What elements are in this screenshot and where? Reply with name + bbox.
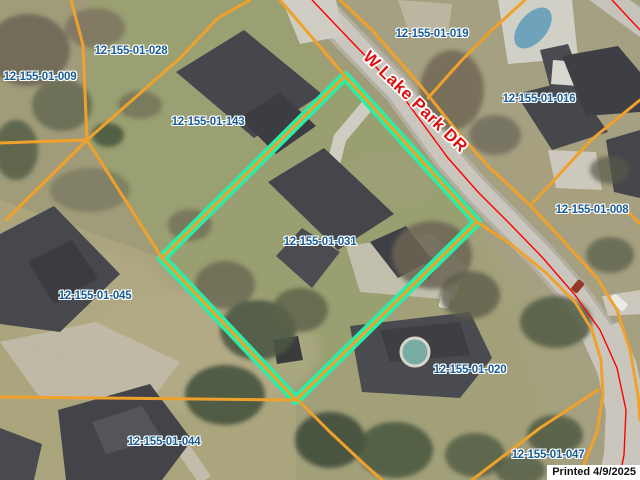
- printed-date-stamp: Printed 4/9/2025: [547, 465, 640, 480]
- parcel-label-008: 12-155-01-008: [556, 204, 629, 216]
- parcel-label-047: 12-155-01-047: [512, 449, 585, 461]
- parcel-label-031: 12-155-01-031: [284, 236, 357, 248]
- parcel-label-020: 12-155-01-020: [434, 364, 507, 376]
- parcel-label-019: 12-155-01-019: [396, 28, 469, 40]
- parcel-label-009: 12-155-01-009: [4, 71, 77, 83]
- parcel-label-028: 12-155-01-028: [95, 45, 168, 57]
- parcel-label-016: 12-155-01-016: [503, 93, 576, 105]
- map-view[interactable]: 12-155-01-009 12-155-01-028 12-155-01-01…: [0, 0, 640, 480]
- parcel-label-143: 12-155-01-143: [172, 116, 245, 128]
- parcel-label-044: 12-155-01-044: [128, 436, 201, 448]
- parcel-label-045: 12-155-01-045: [59, 290, 132, 302]
